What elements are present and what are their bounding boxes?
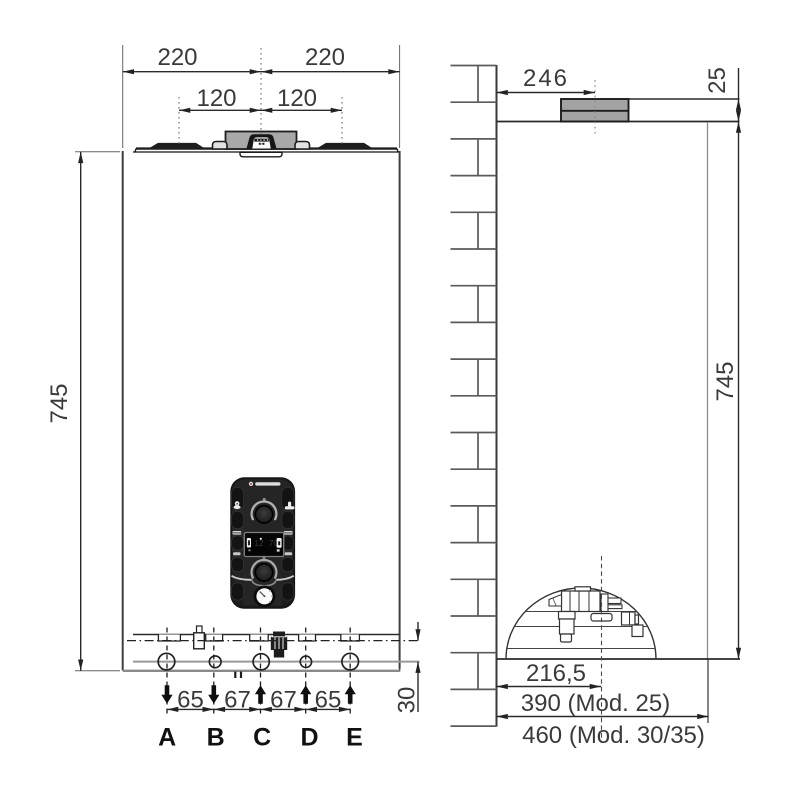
svg-text:216,5: 216,5 xyxy=(526,660,586,687)
svg-text:C: C xyxy=(253,724,271,752)
svg-text:745: 745 xyxy=(46,383,73,423)
svg-text:D: D xyxy=(300,724,318,752)
svg-text:B: B xyxy=(207,724,225,752)
svg-text:120: 120 xyxy=(196,85,236,112)
svg-text:220: 220 xyxy=(157,44,197,71)
svg-text:25: 25 xyxy=(704,67,731,94)
svg-text:67: 67 xyxy=(270,687,297,714)
svg-text:30: 30 xyxy=(394,687,421,714)
svg-text:120: 120 xyxy=(277,85,317,112)
svg-text:246: 246 xyxy=(523,65,569,92)
svg-text:390 (Mod. 25): 390 (Mod. 25) xyxy=(521,690,670,717)
svg-text:E: E xyxy=(346,724,363,752)
svg-text:460 (Mod. 30/35): 460 (Mod. 30/35) xyxy=(522,722,705,749)
svg-text:67: 67 xyxy=(224,687,251,714)
svg-text:65: 65 xyxy=(177,687,204,714)
svg-text:745: 745 xyxy=(712,361,739,401)
svg-text:A: A xyxy=(158,724,176,752)
svg-text:220: 220 xyxy=(305,44,345,71)
svg-text:65: 65 xyxy=(315,687,342,714)
svg-text:12: 12 xyxy=(255,539,264,548)
